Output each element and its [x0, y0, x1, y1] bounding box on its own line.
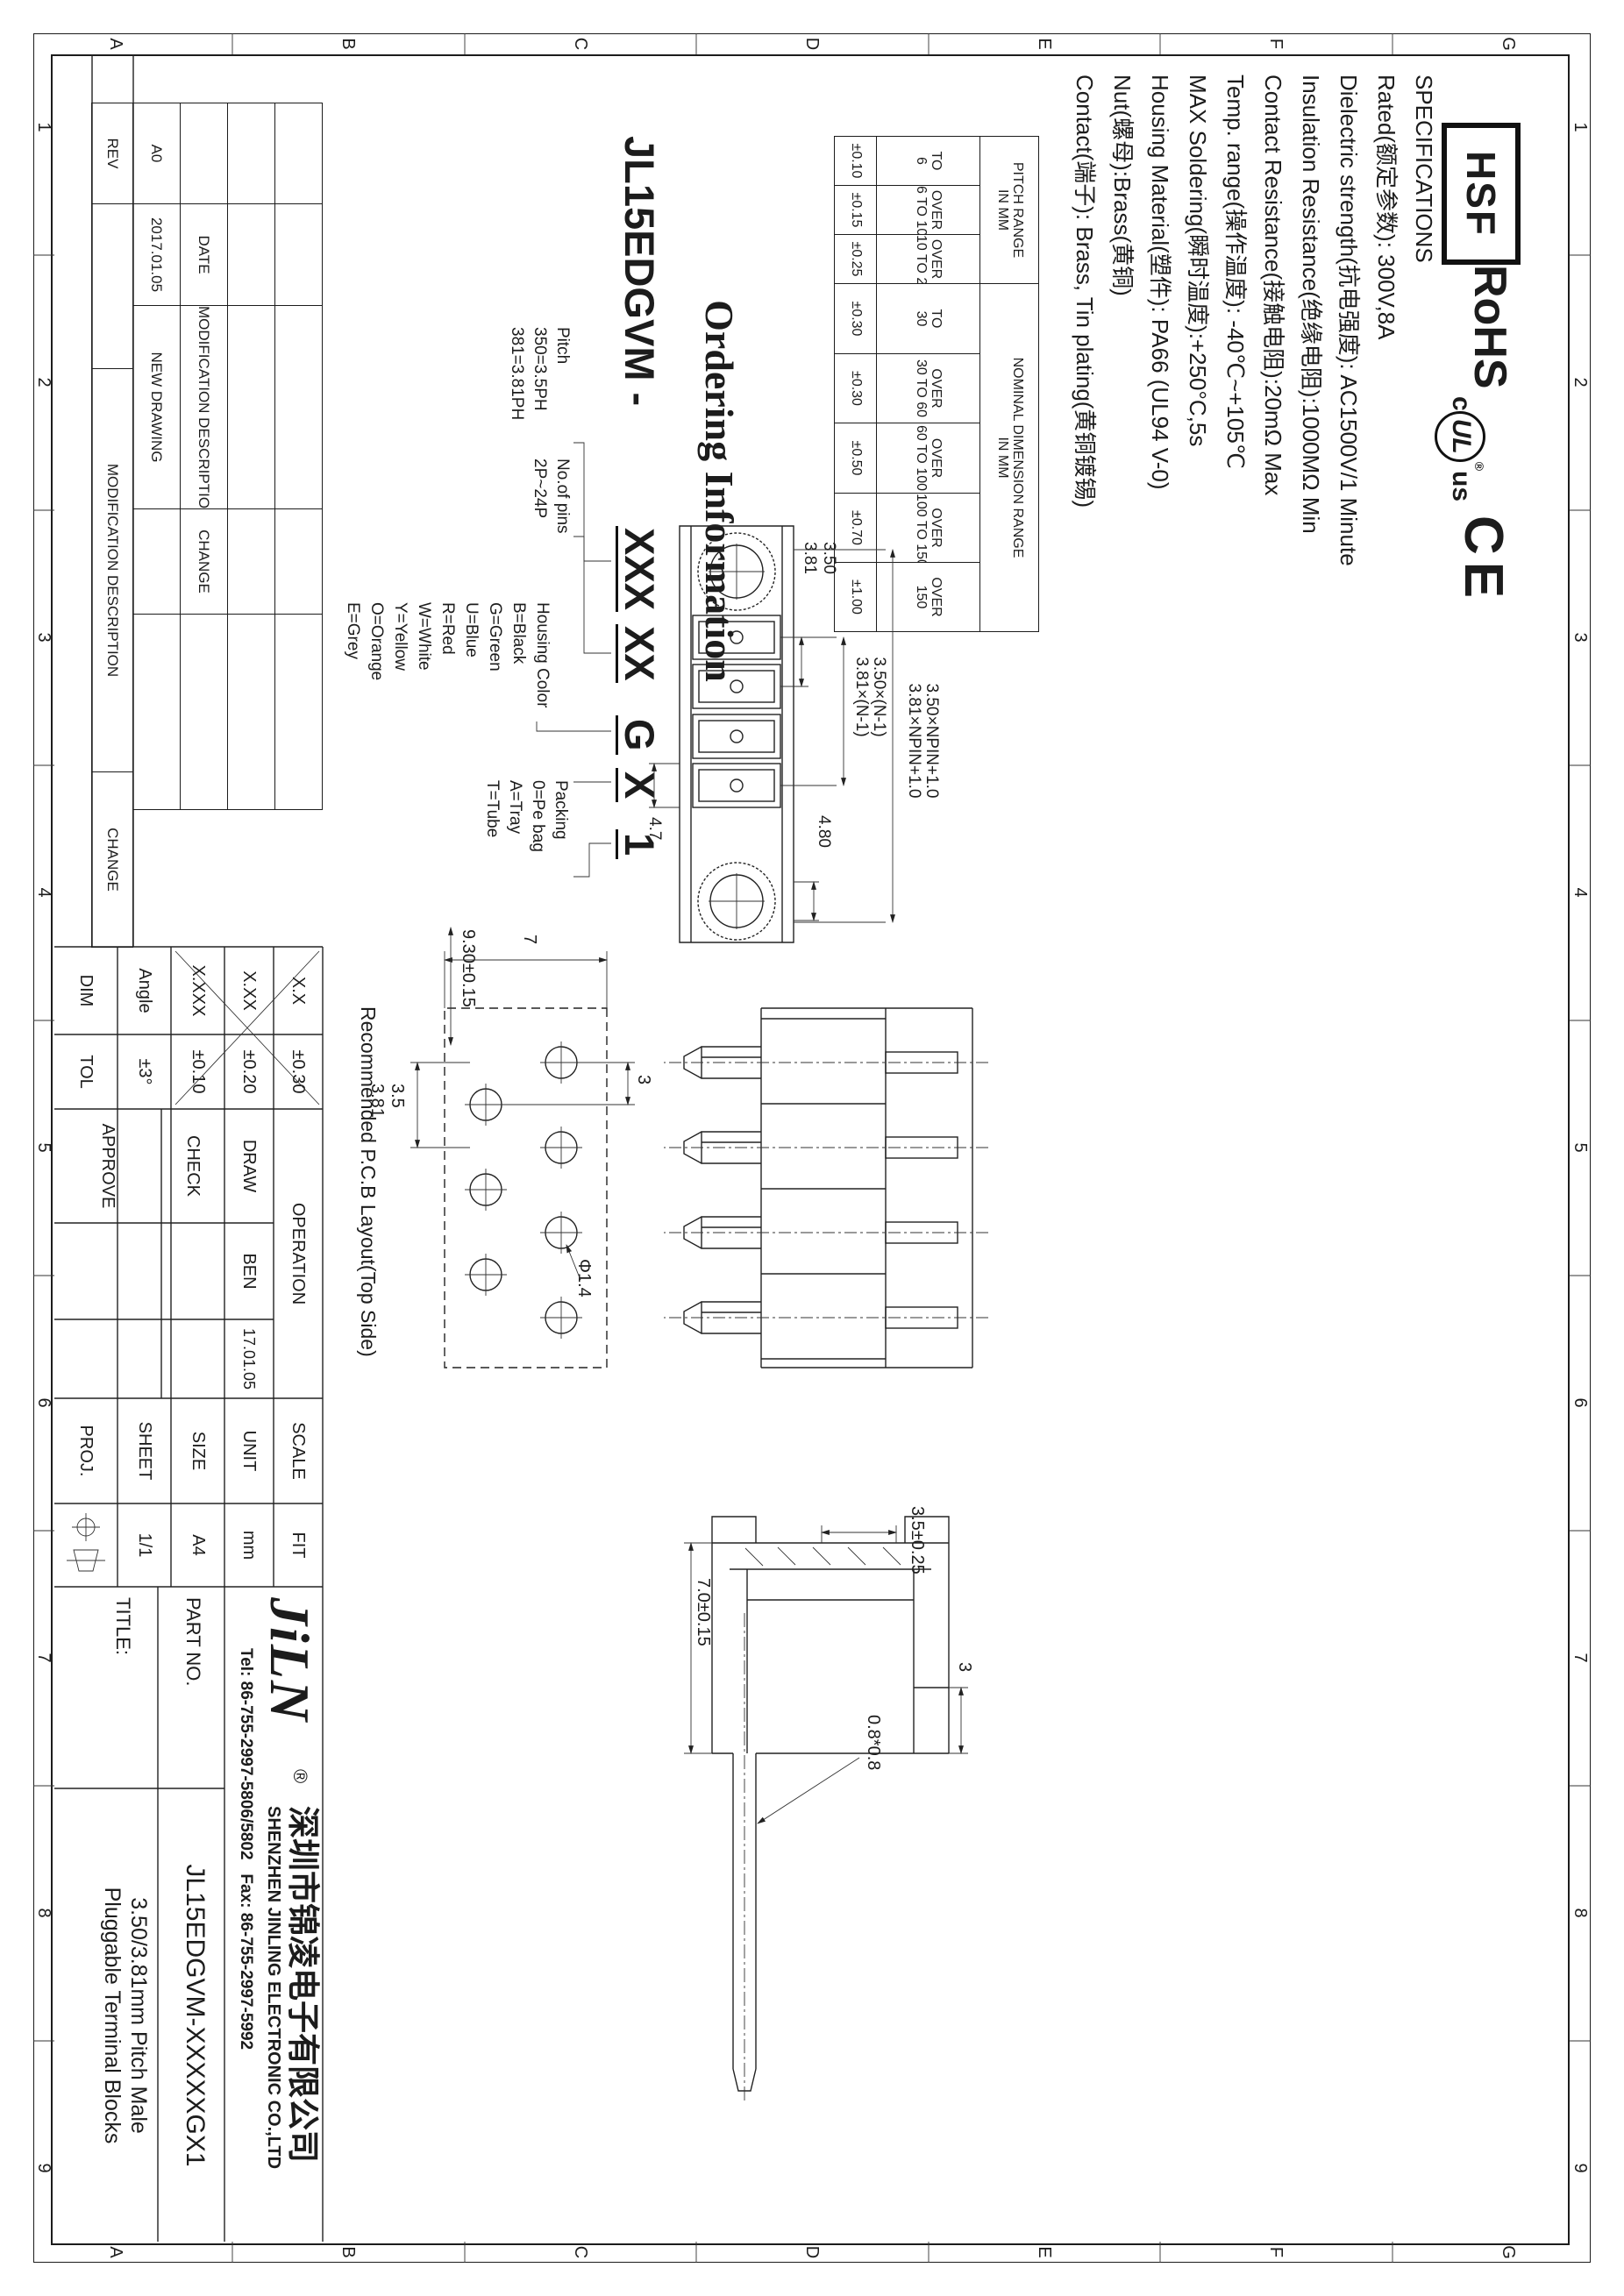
ordering-leaders: [537, 443, 611, 877]
section-view-centerlines: [664, 1063, 988, 1318]
title-block-frame: [54, 54, 323, 2242]
front-view-dims: [649, 550, 893, 922]
front-view-centerlines: [709, 544, 765, 929]
profile-dims: [684, 1525, 968, 1823]
section-view: [684, 1008, 972, 1368]
tolgrid-strike: [175, 951, 319, 1105]
profile-hatching: [745, 1547, 901, 1566]
drawing-sheet: G F E D C B A G F E D C B A 1 2 3 4 5 6 …: [0, 0, 1624, 2296]
projection-symbol: [67, 1513, 105, 1571]
profile-view: [712, 1517, 949, 2091]
drawing-linework: [0, 0, 1624, 2296]
pcb-hole-crosshairs: [465, 1041, 582, 1339]
screenshot-root: { "sheet": { "zones_letters": ["G","F","…: [0, 0, 1624, 2296]
zone-ticks: [33, 33, 1591, 2263]
pcb-layout: [445, 1008, 607, 1368]
